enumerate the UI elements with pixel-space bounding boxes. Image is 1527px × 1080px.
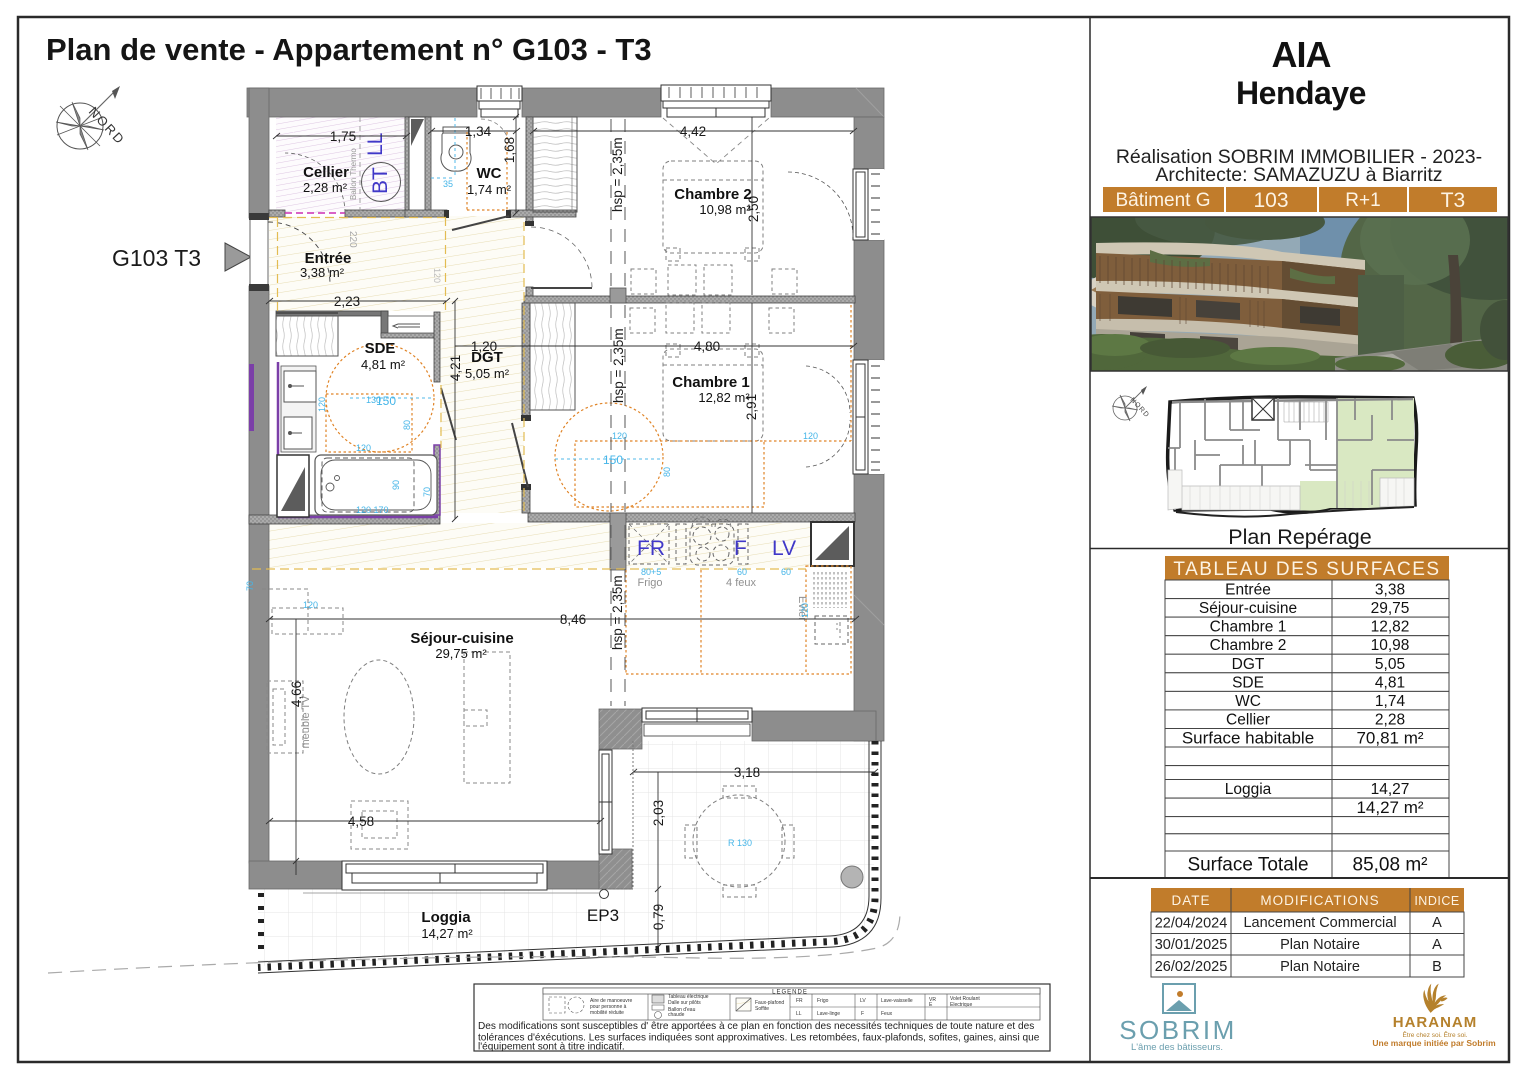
svg-text:3,18: 3,18 <box>734 765 760 780</box>
svg-text:120 170: 120 170 <box>356 505 389 515</box>
svg-text:L'âme des bâtisseurs.: L'âme des bâtisseurs. <box>1131 1042 1223 1053</box>
svg-text:hsp = 2,35m: hsp = 2,35m <box>610 137 625 212</box>
svg-text:l'équipement sont à titre indi: l'équipement sont à titre indicatif. <box>478 1042 625 1053</box>
svg-text:85,08 m²: 85,08 m² <box>1353 855 1428 876</box>
svg-text:4 feux: 4 feux <box>726 577 756 589</box>
svg-text:60: 60 <box>781 567 791 577</box>
svg-text:Lave-linge: Lave-linge <box>817 1011 840 1017</box>
svg-text:5,05 m²: 5,05 m² <box>465 366 510 381</box>
svg-text:4,80: 4,80 <box>694 339 720 354</box>
svg-text:80+5: 80+5 <box>641 567 661 577</box>
svg-text:INDICE: INDICE <box>1414 894 1459 908</box>
svg-text:80: 80 <box>662 467 672 477</box>
svg-text:4,21: 4,21 <box>448 355 463 381</box>
svg-text:1,74 m²: 1,74 m² <box>467 182 512 197</box>
svg-text:Cellier: Cellier <box>1226 712 1270 729</box>
svg-text:TABLEAU DES SURFACES: TABLEAU DES SURFACES <box>1173 559 1440 580</box>
svg-text:150: 150 <box>376 394 396 408</box>
svg-text:Hendaye: Hendaye <box>1236 75 1366 111</box>
svg-text:220: 220 <box>347 231 358 248</box>
svg-text:HARANAM: HARANAM <box>1393 1014 1478 1031</box>
svg-text:12,82: 12,82 <box>1371 619 1410 636</box>
svg-text:BT: BT <box>369 167 392 194</box>
svg-text:35: 35 <box>443 179 453 189</box>
svg-text:14,27 m²: 14,27 m² <box>1356 798 1423 817</box>
svg-text:EP3: EP3 <box>587 906 619 925</box>
svg-text:Frigo: Frigo <box>817 998 829 1004</box>
svg-text:F: F <box>861 1011 864 1017</box>
svg-text:8,46: 8,46 <box>560 612 586 627</box>
svg-text:hsp = 2,35m: hsp = 2,35m <box>610 575 625 650</box>
svg-text:B: B <box>1432 959 1442 975</box>
svg-text:80: 80 <box>402 420 412 430</box>
svg-text:DGT: DGT <box>471 349 503 366</box>
svg-text:4,81 m²: 4,81 m² <box>361 357 406 372</box>
svg-text:3,38: 3,38 <box>1375 582 1405 599</box>
svg-text:R 130: R 130 <box>728 838 752 848</box>
svg-text:2,03: 2,03 <box>651 800 666 826</box>
svg-text:1,34: 1,34 <box>465 124 492 139</box>
svg-text:1,68: 1,68 <box>502 137 517 163</box>
svg-text:FR: FR <box>796 998 803 1004</box>
svg-text:2,28 m²: 2,28 m² <box>303 180 348 195</box>
svg-text:Cellier: Cellier <box>303 164 349 181</box>
svg-text:NORD: NORD <box>1129 397 1151 420</box>
svg-text:120: 120 <box>303 600 318 610</box>
svg-text:Ballon Thermo: Ballon Thermo <box>349 148 358 200</box>
svg-text:12,82 m²: 12,82 m² <box>698 390 750 405</box>
svg-text:26/02/2025: 26/02/2025 <box>1155 959 1228 975</box>
svg-text:NORD: NORD <box>86 104 129 148</box>
svg-text:DATE: DATE <box>1171 893 1210 908</box>
svg-text:3,38 m²: 3,38 m² <box>300 265 345 280</box>
svg-text:chaude: chaude <box>668 1012 685 1018</box>
svg-text:Lancement Commercial: Lancement Commercial <box>1243 915 1396 931</box>
svg-text:10,98: 10,98 <box>1371 637 1410 654</box>
svg-text:SDE: SDE <box>1232 674 1264 691</box>
svg-text:Plan Notaire: Plan Notaire <box>1280 959 1360 975</box>
svg-text:Chambre 1: Chambre 1 <box>1210 619 1287 636</box>
svg-text:LL: LL <box>796 1011 802 1017</box>
svg-text:SOBRIM: SOBRIM <box>1119 1015 1237 1045</box>
svg-text:DGT: DGT <box>1232 656 1265 673</box>
svg-text:60: 60 <box>737 567 747 577</box>
svg-text:Séjour-cuisine: Séjour-cuisine <box>1199 600 1297 617</box>
svg-text:1,74: 1,74 <box>1375 693 1406 710</box>
svg-text:Lave-vaisselle: Lave-vaisselle <box>881 998 913 1004</box>
svg-text:Frigo: Frigo <box>637 577 662 589</box>
svg-text:F: F <box>734 537 747 560</box>
svg-text:Surface habitable: Surface habitable <box>1182 729 1314 748</box>
svg-text:Electrique: Electrique <box>950 1002 972 1008</box>
svg-text:30/01/2025: 30/01/2025 <box>1155 937 1228 953</box>
svg-text:mobilité réduite: mobilité réduite <box>590 1010 624 1016</box>
svg-text:14,27 m²: 14,27 m² <box>421 926 473 941</box>
svg-text:Chambre 1: Chambre 1 <box>672 374 750 391</box>
svg-text:29,75: 29,75 <box>1371 600 1410 617</box>
svg-text:4,66: 4,66 <box>289 681 304 707</box>
svg-text:A: A <box>1432 915 1442 931</box>
svg-text:4,42: 4,42 <box>680 124 706 139</box>
svg-text:90: 90 <box>391 480 401 490</box>
svg-text:1,75: 1,75 <box>330 129 356 144</box>
svg-text:14,27: 14,27 <box>1371 781 1410 798</box>
svg-text:hsp = 2,35m: hsp = 2,35m <box>611 328 626 403</box>
svg-text:120: 120 <box>432 268 442 283</box>
svg-text:Dalle sur pilôts: Dalle sur pilôts <box>668 1000 701 1006</box>
svg-text:4,58: 4,58 <box>348 814 374 829</box>
svg-text:120: 120 <box>612 431 627 441</box>
svg-text:29,75 m²: 29,75 m² <box>435 646 487 661</box>
svg-text:Feux: Feux <box>881 1011 893 1017</box>
svg-text:Chambre 2: Chambre 2 <box>1210 637 1287 654</box>
svg-text:5,05: 5,05 <box>1375 656 1405 673</box>
svg-text:4,81: 4,81 <box>1375 674 1405 691</box>
svg-text:SDE: SDE <box>365 340 396 357</box>
svg-text:Loggia: Loggia <box>421 909 471 926</box>
svg-text:Bâtiment G: Bâtiment G <box>1115 190 1210 211</box>
svg-text:Plan de vente - Appartement n°: Plan de vente - Appartement n° G103 - T3 <box>46 32 652 67</box>
svg-text:AIA: AIA <box>1272 34 1332 75</box>
svg-text:70: 70 <box>245 581 255 591</box>
svg-text:Chambre 2: Chambre 2 <box>674 186 752 203</box>
svg-text:Loggia: Loggia <box>1225 781 1272 798</box>
svg-text:A: A <box>1432 937 1442 953</box>
svg-text:G103 T3: G103 T3 <box>112 245 201 271</box>
svg-text:120: 120 <box>317 397 327 412</box>
svg-text:Architecte: SAMAZUZU à Biarrit: Architecte: SAMAZUZU à Biarritz <box>1155 164 1442 186</box>
svg-text:120: 120 <box>803 431 818 441</box>
svg-text:120: 120 <box>356 443 371 453</box>
svg-text:2,28: 2,28 <box>1375 712 1405 729</box>
svg-text:0,79: 0,79 <box>651 904 666 930</box>
svg-text:LV: LV <box>772 537 796 560</box>
svg-text:150: 150 <box>603 453 623 467</box>
svg-text:120: 120 <box>800 603 810 618</box>
svg-text:2,23: 2,23 <box>334 294 360 309</box>
svg-text:WC: WC <box>1235 693 1261 710</box>
svg-text:MODIFICATIONS: MODIFICATIONS <box>1260 893 1379 908</box>
svg-text:22/04/2024: 22/04/2024 <box>1155 916 1228 932</box>
svg-text:FR: FR <box>637 537 665 560</box>
svg-text:Soffite: Soffite <box>755 1006 769 1012</box>
svg-text:103: 103 <box>1253 189 1288 212</box>
svg-text:LV: LV <box>860 998 866 1004</box>
svg-text:T3: T3 <box>1441 189 1466 212</box>
svg-text:R+1: R+1 <box>1345 190 1380 211</box>
svg-text:Des modifications sont suscept: Des modifications sont susceptibles d' ê… <box>478 1021 1034 1032</box>
svg-text:Plan Repérage: Plan Repérage <box>1228 525 1371 549</box>
svg-text:Surface Totale: Surface Totale <box>1187 855 1308 876</box>
svg-text:Une marque initiée par Sobrim: Une marque initiée par Sobrim <box>1372 1038 1496 1048</box>
svg-text:Séjour-cuisine: Séjour-cuisine <box>410 630 513 647</box>
svg-text:10,98 m²: 10,98 m² <box>699 202 751 217</box>
svg-text:70: 70 <box>422 487 432 497</box>
svg-text:Entrée: Entrée <box>1225 582 1271 599</box>
svg-text:70,81 m²: 70,81 m² <box>1356 729 1423 748</box>
svg-text:WC: WC <box>477 165 502 182</box>
svg-text:Plan Notaire: Plan Notaire <box>1280 937 1360 953</box>
